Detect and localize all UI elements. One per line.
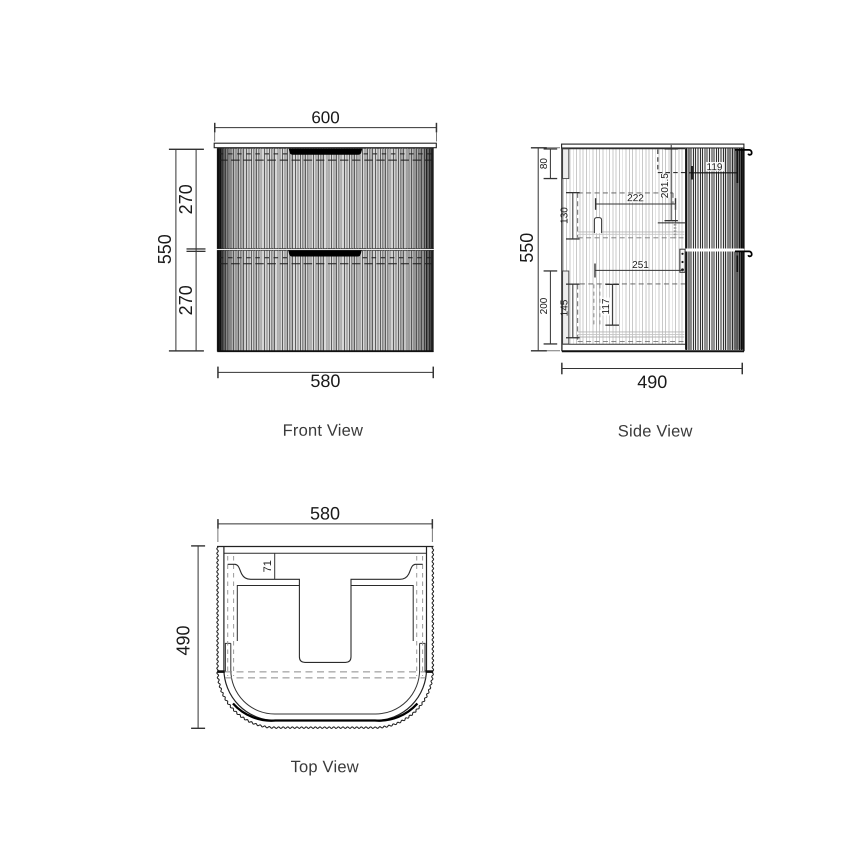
svg-text:270: 270 xyxy=(176,285,196,315)
svg-text:251: 251 xyxy=(632,260,649,271)
svg-text:80: 80 xyxy=(539,158,550,170)
svg-text:600: 600 xyxy=(311,108,339,127)
svg-text:490: 490 xyxy=(173,625,193,655)
svg-text:71: 71 xyxy=(262,560,274,572)
svg-text:580: 580 xyxy=(310,371,340,391)
svg-text:550: 550 xyxy=(517,233,537,263)
svg-text:117: 117 xyxy=(601,298,612,314)
svg-text:Front View: Front View xyxy=(283,422,364,440)
svg-text:201.5: 201.5 xyxy=(660,173,671,198)
svg-text:Top View: Top View xyxy=(291,758,359,776)
svg-text:270: 270 xyxy=(176,184,196,214)
svg-text:145: 145 xyxy=(560,299,571,316)
svg-text:130: 130 xyxy=(560,207,571,224)
svg-text:119: 119 xyxy=(707,162,723,173)
svg-text:550: 550 xyxy=(155,234,175,264)
svg-text:580: 580 xyxy=(310,503,340,523)
svg-text:200: 200 xyxy=(539,297,550,314)
svg-text:490: 490 xyxy=(637,372,667,392)
svg-text:Side View: Side View xyxy=(618,422,693,440)
svg-text:222: 222 xyxy=(627,193,644,204)
